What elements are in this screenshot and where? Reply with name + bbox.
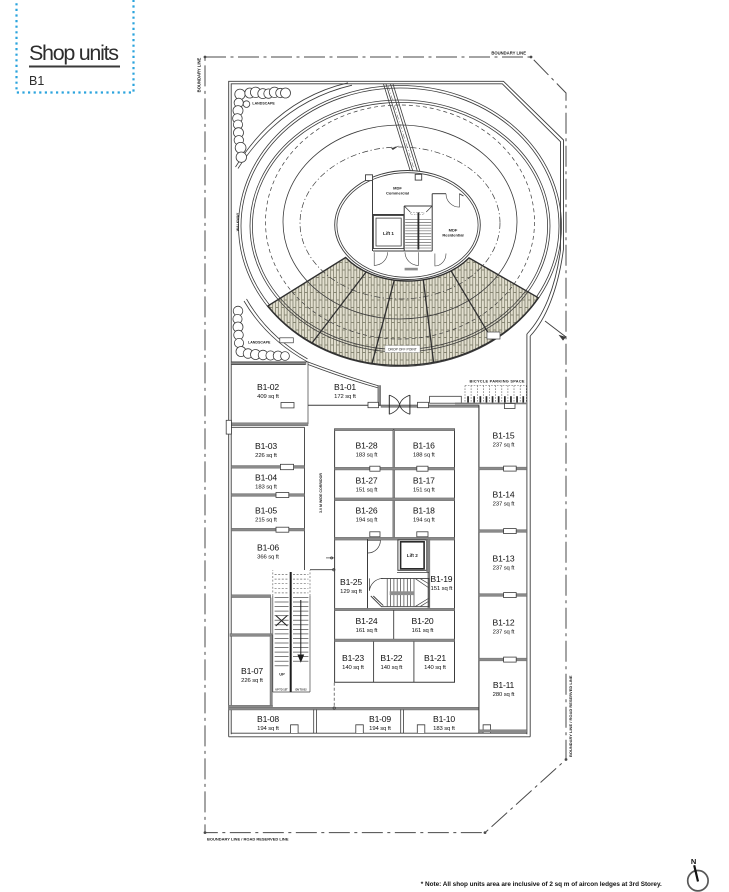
svg-text:188 sq ft: 188 sq ft	[413, 453, 435, 459]
svg-text:161 sq ft: 161 sq ft	[356, 628, 378, 634]
svg-text:B1-15: B1-15	[493, 431, 515, 441]
svg-text:B1-20: B1-20	[412, 616, 434, 626]
svg-text:Lift 1: Lift 1	[383, 231, 394, 236]
svg-text:Commercial: Commercial	[386, 190, 409, 195]
svg-text:183 sq ft: 183 sq ft	[255, 485, 277, 491]
svg-text:* Note: All shop units area ar: * Note: All shop units area are inclusiv…	[421, 881, 662, 888]
svg-text:B1-14: B1-14	[493, 490, 515, 500]
svg-text:B1-16: B1-16	[413, 441, 435, 451]
svg-text:237 sq ft: 237 sq ft	[493, 502, 515, 508]
svg-text:280 sq ft: 280 sq ft	[493, 692, 515, 698]
svg-text:B1-11: B1-11	[493, 680, 515, 690]
svg-text:140 sq ft: 140 sq ft	[424, 665, 446, 671]
svg-text:BOUNDARY LINE: BOUNDARY LINE	[491, 51, 526, 56]
svg-text:Residential: Residential	[442, 232, 463, 237]
svg-text:DROP OFF POINT: DROP OFF POINT	[388, 348, 417, 352]
svg-text:WALKWAY: WALKWAY	[236, 212, 240, 231]
svg-text:BOUNDARY LINE / ROAD RESERVED: BOUNDARY LINE / ROAD RESERVED LINE	[568, 675, 573, 757]
svg-text:B1-10: B1-10	[433, 714, 455, 724]
svg-text:194 sq ft: 194 sq ft	[257, 726, 279, 732]
svg-text:3.0 M WIDE CORRIDOR: 3.0 M WIDE CORRIDOR	[319, 473, 323, 513]
svg-text:140 sq ft: 140 sq ft	[342, 665, 364, 671]
svg-text:B1-04: B1-04	[255, 473, 277, 483]
svg-text:B1-24: B1-24	[356, 616, 378, 626]
svg-text:409 sq ft: 409 sq ft	[257, 394, 279, 400]
svg-text:B1-22: B1-22	[380, 653, 402, 663]
svg-text:151 sq ft: 151 sq ft	[356, 488, 378, 494]
svg-text:B1-02: B1-02	[257, 382, 279, 392]
svg-text:BOUNDARY LINE / ROAD RESERVED: BOUNDARY LINE / ROAD RESERVED LINE	[207, 837, 289, 842]
svg-text:UP: UP	[279, 672, 285, 677]
svg-text:B1-03: B1-03	[255, 441, 277, 451]
svg-text:B1-13: B1-13	[493, 554, 515, 564]
svg-text:151 sq ft: 151 sq ft	[413, 488, 435, 494]
svg-text:237 sq ft: 237 sq ft	[493, 630, 515, 636]
svg-text:B1-27: B1-27	[356, 476, 378, 486]
svg-text:129 sq ft: 129 sq ft	[340, 589, 362, 595]
svg-text:B1-07: B1-07	[241, 666, 263, 676]
svg-text:140 sq ft: 140 sq ft	[381, 665, 403, 671]
svg-text:BOUNDARY LINE: BOUNDARY LINE	[197, 57, 202, 92]
svg-text:B1-21: B1-21	[424, 653, 446, 663]
svg-text:LANDSCAPE: LANDSCAPE	[248, 341, 271, 345]
svg-text:194 sq ft: 194 sq ft	[356, 518, 378, 524]
svg-text:215 sq ft: 215 sq ft	[255, 518, 277, 524]
svg-text:194 sq ft: 194 sq ft	[413, 518, 435, 524]
svg-text:N: N	[691, 857, 696, 866]
svg-text:183 sq ft: 183 sq ft	[433, 726, 455, 732]
svg-text:B1-23: B1-23	[342, 653, 364, 663]
svg-text:DN TO B2: DN TO B2	[295, 689, 307, 692]
svg-text:172 sq ft: 172 sq ft	[334, 394, 356, 400]
svg-text:B1-08: B1-08	[257, 714, 279, 724]
svg-text:LANDSCAPE: LANDSCAPE	[252, 102, 275, 106]
svg-text:B1: B1	[29, 74, 44, 88]
svg-text:B1-28: B1-28	[356, 441, 378, 451]
svg-text:B1-25: B1-25	[340, 577, 362, 587]
svg-text:151 sq ft: 151 sq ft	[431, 586, 453, 592]
svg-text:B1-12: B1-12	[493, 617, 515, 627]
svg-text:B1-19: B1-19	[430, 574, 452, 584]
svg-text:237 sq ft: 237 sq ft	[493, 443, 515, 449]
svg-text:161 sq ft: 161 sq ft	[412, 628, 434, 634]
svg-text:BICYCLE PARKING SPACE: BICYCLE PARKING SPACE	[470, 378, 525, 383]
svg-text:Shop units: Shop units	[29, 41, 119, 65]
svg-text:366 sq ft: 366 sq ft	[257, 555, 279, 561]
svg-text:B1-05: B1-05	[255, 506, 277, 516]
svg-text:237 sq ft: 237 sq ft	[493, 566, 515, 572]
svg-text:Lift 2: Lift 2	[407, 553, 418, 558]
svg-text:B1-01: B1-01	[334, 382, 356, 392]
svg-text:B1-26: B1-26	[356, 506, 378, 516]
svg-text:UP TO 1ST: UP TO 1ST	[275, 689, 288, 692]
svg-text:B1-17: B1-17	[413, 476, 435, 486]
svg-text:B1-18: B1-18	[413, 506, 435, 516]
svg-text:226 sq ft: 226 sq ft	[255, 453, 277, 459]
svg-text:183 sq ft: 183 sq ft	[356, 453, 378, 459]
svg-text:B1-06: B1-06	[257, 543, 279, 553]
svg-text:226 sq ft: 226 sq ft	[241, 678, 263, 684]
svg-text:B1-09: B1-09	[369, 714, 391, 724]
svg-text:194 sq ft: 194 sq ft	[369, 726, 391, 732]
